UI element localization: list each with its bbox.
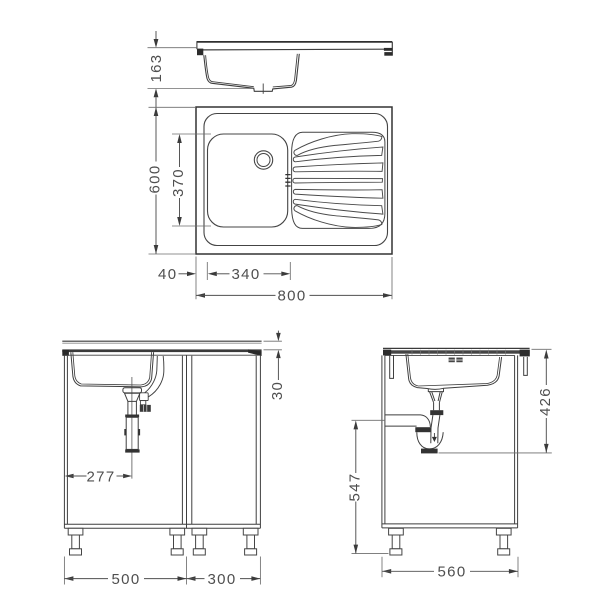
svg-text:547: 547 (346, 473, 363, 502)
svg-text:560: 560 (438, 564, 467, 581)
svg-text:30: 30 (269, 381, 286, 400)
svg-text:600: 600 (147, 165, 164, 194)
svg-text:370: 370 (170, 168, 187, 197)
svg-text:300: 300 (208, 571, 237, 588)
svg-text:426: 426 (537, 387, 554, 416)
svg-text:163: 163 (148, 54, 165, 83)
svg-text:800: 800 (278, 288, 307, 305)
svg-text:500: 500 (112, 571, 141, 588)
svg-text:40: 40 (158, 266, 177, 283)
svg-text:340: 340 (232, 266, 261, 283)
svg-text:277: 277 (87, 468, 116, 485)
